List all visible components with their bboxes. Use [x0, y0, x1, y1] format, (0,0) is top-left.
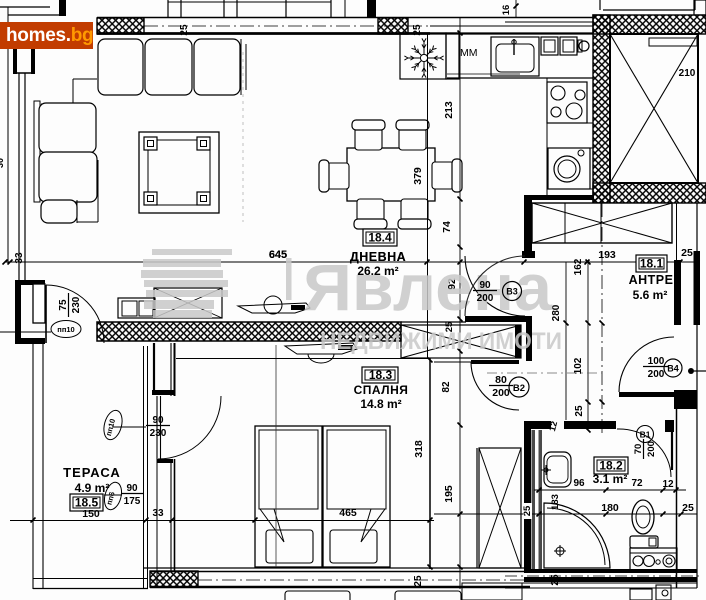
- svg-text:25: 25: [522, 505, 533, 516]
- svg-text:90: 90: [152, 415, 164, 426]
- svg-text:18.2: 18.2: [599, 459, 623, 473]
- svg-text:200: 200: [492, 387, 510, 399]
- svg-text:100: 100: [648, 356, 665, 367]
- svg-text:180: 180: [601, 502, 619, 514]
- svg-text:25: 25: [179, 24, 190, 36]
- svg-text:200: 200: [646, 441, 657, 457]
- svg-text:4.9 m²: 4.9 m²: [75, 481, 110, 495]
- svg-text:5.6 m²: 5.6 m²: [633, 288, 668, 302]
- svg-text:213: 213: [443, 101, 455, 119]
- svg-text:82: 82: [441, 381, 452, 393]
- svg-text:12: 12: [662, 479, 674, 490]
- svg-text:210: 210: [679, 68, 696, 79]
- svg-text:70: 70: [633, 444, 644, 455]
- svg-text:18.4: 18.4: [368, 231, 392, 245]
- svg-text:90: 90: [126, 483, 138, 494]
- svg-text:ДНЕВНА: ДНЕВНА: [350, 250, 406, 264]
- svg-text:В2: В2: [513, 383, 525, 394]
- svg-text:193: 193: [598, 249, 616, 261]
- svg-text:25: 25: [413, 575, 424, 587]
- svg-text:14.8 m²: 14.8 m²: [360, 397, 401, 411]
- svg-text:НЕДВИЖИМИ ИМОТИ: НЕДВИЖИМИ ИМОТИ: [320, 328, 562, 355]
- svg-text:MM: MM: [460, 47, 478, 59]
- svg-text:72: 72: [631, 478, 643, 489]
- svg-text:280: 280: [551, 304, 562, 321]
- svg-text:465: 465: [339, 507, 357, 519]
- svg-text:АНТРЕ: АНТРЕ: [629, 273, 674, 287]
- svg-text:90: 90: [479, 280, 491, 291]
- svg-text:ТЕРАСА: ТЕРАСА: [63, 465, 121, 480]
- svg-text:102: 102: [573, 357, 584, 374]
- svg-text:150: 150: [82, 508, 100, 520]
- svg-text:379: 379: [412, 167, 424, 185]
- svg-text:230: 230: [150, 428, 167, 439]
- svg-text:В3: В3: [506, 287, 518, 297]
- svg-text:74: 74: [441, 221, 453, 233]
- svg-text:645: 645: [269, 249, 287, 261]
- svg-text:230: 230: [71, 296, 82, 313]
- svg-text:200: 200: [477, 293, 494, 304]
- svg-text:25: 25: [682, 502, 694, 514]
- svg-text:18.1: 18.1: [640, 257, 664, 271]
- svg-text:18.3: 18.3: [369, 368, 393, 382]
- svg-text:3.1 m²: 3.1 m²: [593, 472, 628, 486]
- svg-text:33: 33: [152, 508, 164, 519]
- svg-text:В4: В4: [667, 364, 679, 374]
- svg-text:СПАЛНЯ: СПАЛНЯ: [354, 383, 409, 397]
- svg-text:В1: В1: [640, 430, 651, 440]
- svg-text:96: 96: [573, 478, 585, 489]
- svg-text:25: 25: [681, 247, 693, 259]
- svg-text:318: 318: [413, 440, 425, 458]
- svg-text:пп10: пп10: [57, 325, 74, 334]
- svg-text:162: 162: [573, 258, 584, 275]
- svg-text:195: 195: [443, 485, 455, 503]
- svg-text:25: 25: [574, 405, 585, 417]
- svg-text:175: 175: [124, 496, 141, 507]
- svg-text:75: 75: [58, 299, 69, 311]
- svg-text:25: 25: [550, 574, 561, 586]
- svg-text:200: 200: [648, 369, 665, 380]
- svg-text:16: 16: [501, 5, 512, 16]
- svg-text:80: 80: [495, 374, 507, 386]
- svg-text:183: 183: [550, 494, 561, 510]
- svg-text:25: 25: [412, 24, 423, 36]
- svg-text:30: 30: [0, 158, 5, 168]
